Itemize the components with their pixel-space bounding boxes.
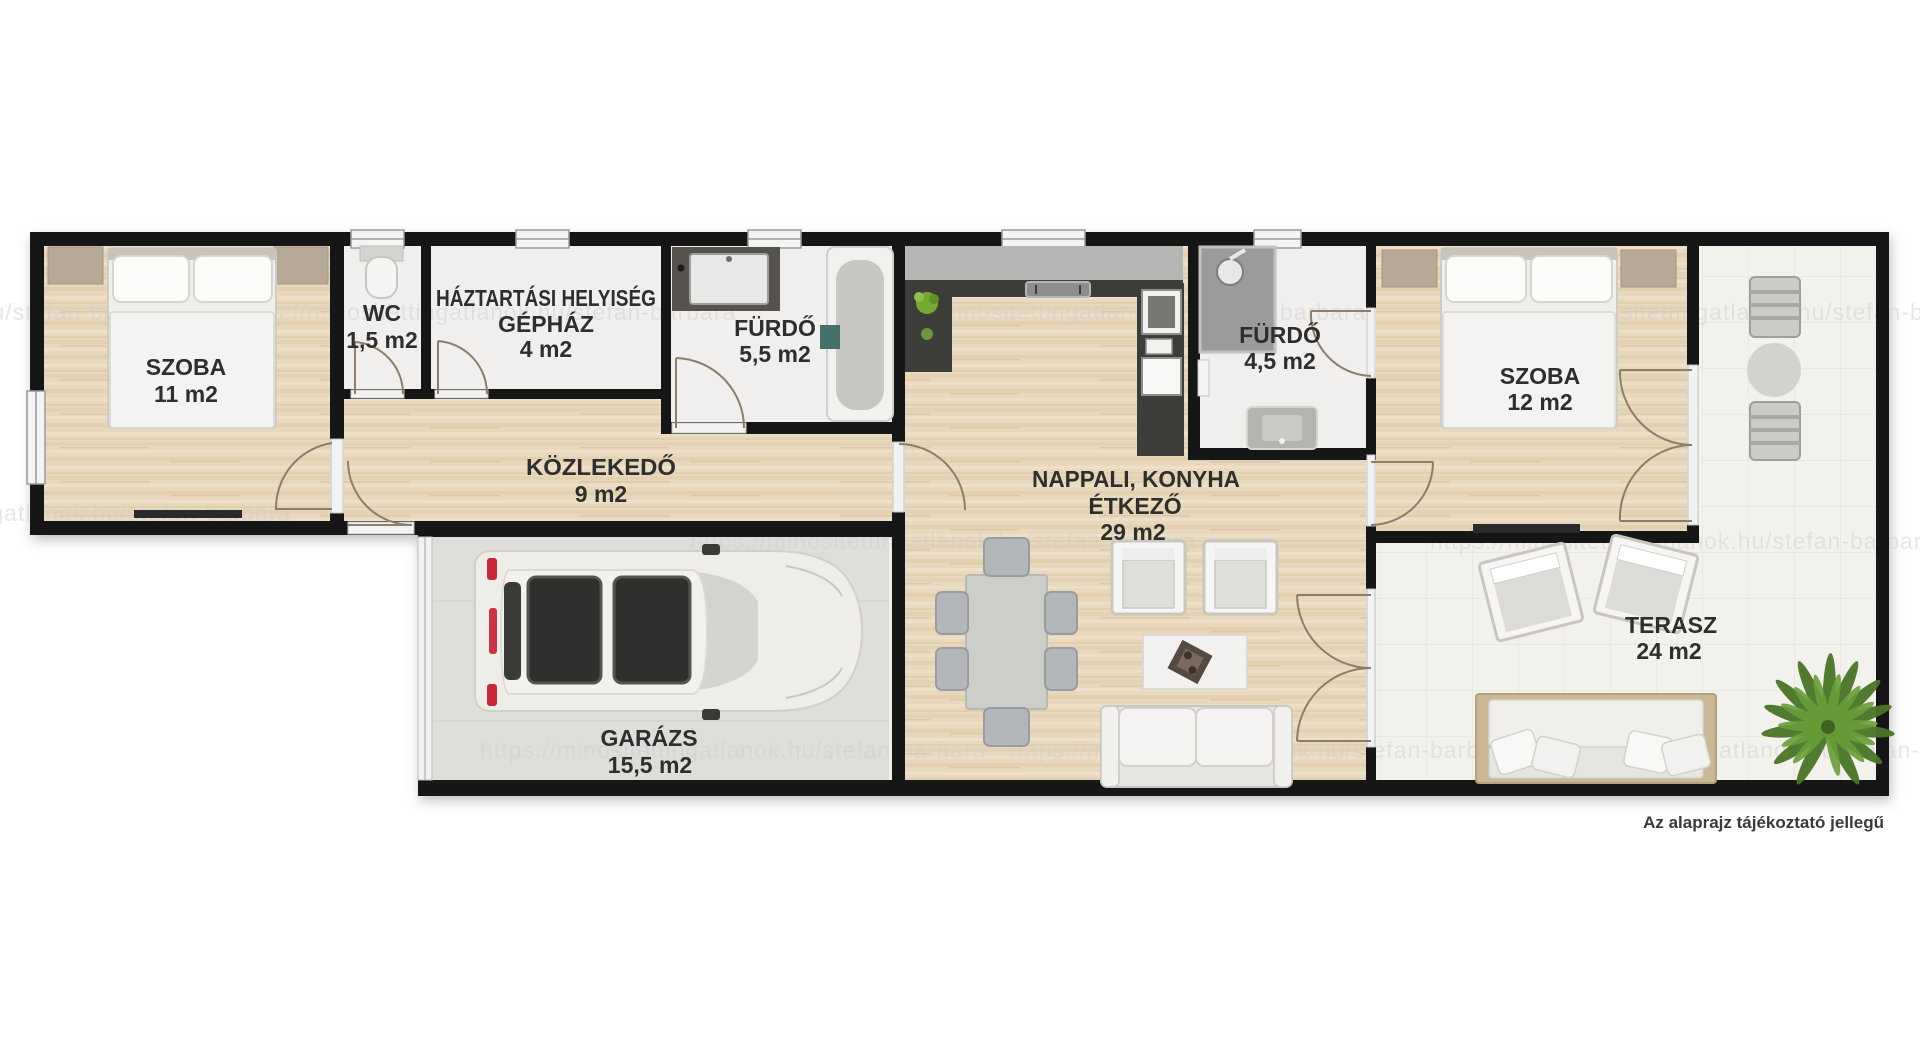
- svg-text:5,5 m2: 5,5 m2: [739, 341, 811, 367]
- svg-text:9 m2: 9 m2: [575, 481, 627, 507]
- svg-text:GÉPHÁZ: GÉPHÁZ: [498, 310, 594, 337]
- svg-text:NAPPALI, KONYHA: NAPPALI, KONYHA: [1032, 466, 1240, 492]
- svg-text:4 m2: 4 m2: [520, 336, 572, 362]
- svg-text:29 m2: 29 m2: [1100, 519, 1165, 545]
- svg-text:WC: WC: [363, 300, 401, 326]
- svg-text:KÖZLEKEDŐ: KÖZLEKEDŐ: [526, 453, 676, 480]
- svg-text:4,5 m2: 4,5 m2: [1244, 348, 1316, 374]
- svg-text:ÉTKEZŐ: ÉTKEZŐ: [1088, 492, 1181, 519]
- svg-text:GARÁZS: GARÁZS: [600, 724, 697, 751]
- svg-text:SZOBA: SZOBA: [1500, 363, 1581, 389]
- svg-text:24 m2: 24 m2: [1636, 638, 1701, 664]
- svg-text:1,5 m2: 1,5 m2: [346, 327, 418, 353]
- svg-text:FÜRDŐ: FÜRDŐ: [734, 314, 816, 341]
- svg-text:SZOBA: SZOBA: [146, 354, 227, 380]
- svg-text:TERASZ: TERASZ: [1625, 612, 1717, 638]
- svg-text:FÜRDŐ: FÜRDŐ: [1239, 321, 1321, 348]
- svg-text:https://minositettingatlanok.h: https://minositettingatlanok.hu/stefan-b…: [480, 737, 986, 763]
- svg-text:11 m2: 11 m2: [154, 381, 218, 407]
- svg-text:HÁZTARTÁSI HELYISÉG: HÁZTARTÁSI HELYISÉG: [436, 284, 656, 311]
- svg-text:Az alaprajz tájékoztató jelleg: Az alaprajz tájékoztató jellegű: [1643, 813, 1884, 832]
- svg-text:15,5 m2: 15,5 m2: [608, 752, 692, 778]
- svg-text:12 m2: 12 m2: [1507, 389, 1572, 415]
